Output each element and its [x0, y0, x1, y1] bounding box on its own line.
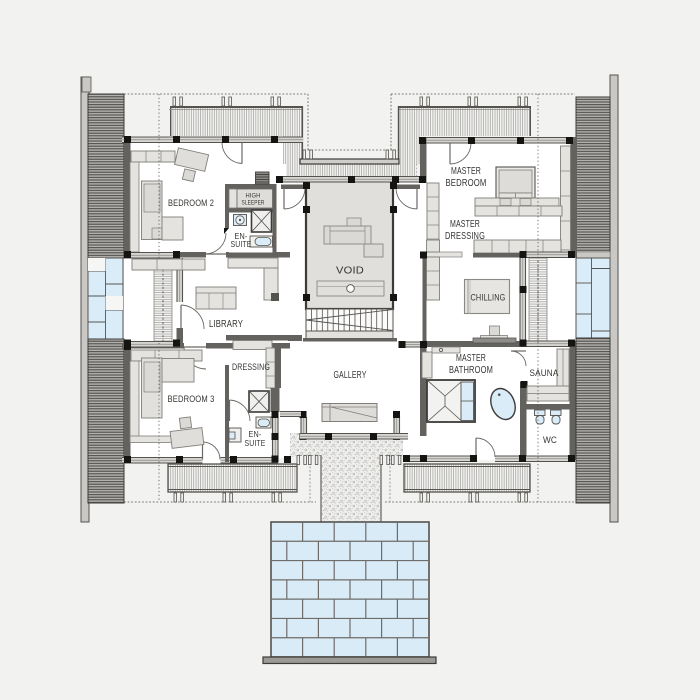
- svg-text:GALLERY: GALLERY: [334, 369, 367, 381]
- svg-text:BATHROOM: BATHROOM: [449, 365, 493, 376]
- svg-text:DRESSING: DRESSING: [232, 362, 270, 373]
- svg-text:VOID: VOID: [336, 266, 364, 277]
- svg-text:WC: WC: [543, 435, 557, 446]
- svg-text:MASTER: MASTER: [451, 166, 481, 177]
- svg-text:DRESSING: DRESSING: [445, 231, 485, 242]
- svg-text:SUITE: SUITE: [231, 239, 252, 249]
- svg-text:MASTER: MASTER: [456, 353, 486, 364]
- svg-text:HIGH: HIGH: [246, 193, 261, 200]
- svg-text:BEDROOM 2: BEDROOM 2: [168, 198, 214, 209]
- svg-text:CHILLING: CHILLING: [471, 293, 506, 303]
- svg-text:LIBRARY: LIBRARY: [209, 319, 243, 330]
- svg-text:SUITE: SUITE: [245, 438, 266, 448]
- svg-text:MASTER: MASTER: [450, 219, 480, 230]
- svg-text:SLEEPER: SLEEPER: [242, 200, 265, 207]
- svg-text:BEDROOM 3: BEDROOM 3: [168, 394, 215, 405]
- svg-text:BEDROOM: BEDROOM: [446, 178, 487, 189]
- svg-text:SAUNA: SAUNA: [530, 368, 559, 379]
